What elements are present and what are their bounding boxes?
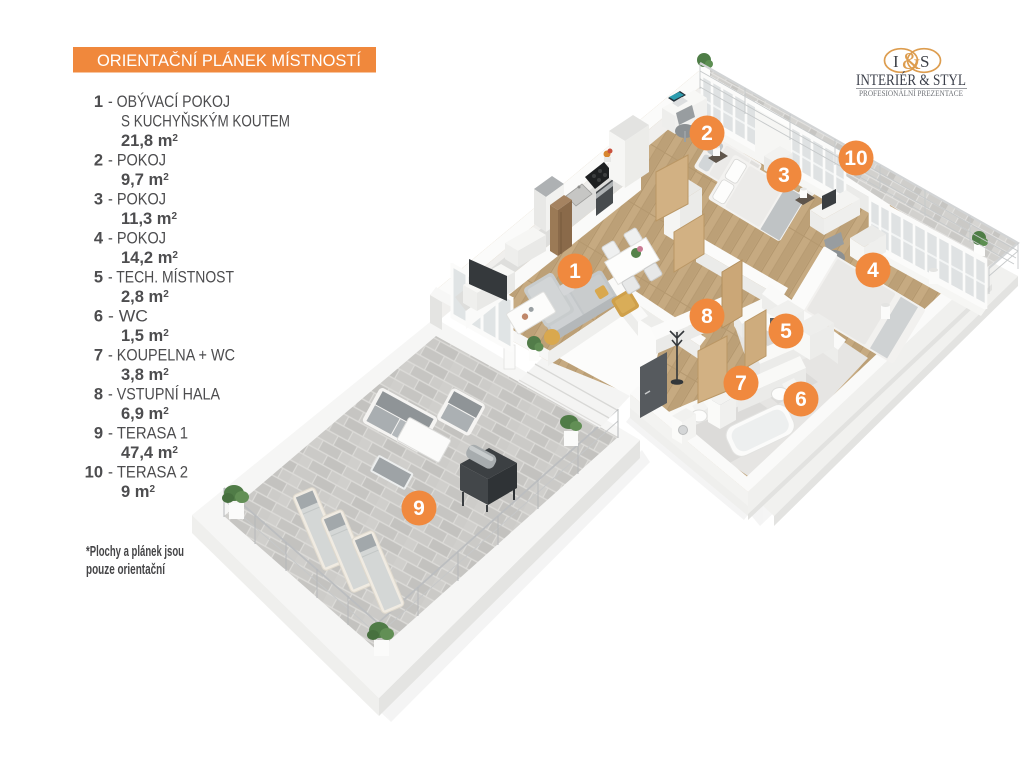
svg-text:9: 9 [94,425,103,443]
svg-text:7: 7 [735,372,747,395]
svg-text:2: 2 [94,152,103,170]
svg-text:- POKOJ: - POKOJ [108,230,166,248]
svg-text:6,9 m2: 6,9 m2 [121,405,169,423]
svg-text:PROFESIONÁLNÍ PREZENTACE: PROFESIONÁLNÍ PREZENTACE [859,88,963,98]
svg-text:8: 8 [701,305,713,328]
svg-text:pouze orientační: pouze orientační [86,562,166,578]
svg-text:9,7 m2: 9,7 m2 [121,171,169,189]
svg-text:2,8 m2: 2,8 m2 [121,288,169,306]
svg-text:INTERIÉR & STYL: INTERIÉR & STYL [856,70,966,89]
svg-text:3: 3 [94,191,103,209]
svg-text:1: 1 [94,93,103,111]
svg-text:4: 4 [867,259,879,282]
svg-text:- POKOJ: - POKOJ [108,191,166,209]
svg-text:4: 4 [94,230,104,248]
svg-text:6: 6 [795,388,807,411]
svg-text:9: 9 [413,497,425,520]
svg-text:- WC: - WC [108,308,148,326]
svg-text:6: 6 [94,308,103,326]
svg-text:5: 5 [94,269,103,287]
svg-text:*Plochy a plánek jsou: *Plochy a plánek jsou [86,544,184,560]
svg-text:- KOUPELNA + WC: - KOUPELNA + WC [108,347,235,365]
svg-text:- OBÝVACÍ POKOJ: - OBÝVACÍ POKOJ [108,92,230,111]
svg-text:I: I [893,52,899,71]
svg-text:- TERASA 1: - TERASA 1 [108,425,188,443]
svg-text:21,8 m2: 21,8 m2 [121,132,178,150]
svg-text:14,2 m2: 14,2 m2 [121,249,178,267]
svg-text:3,8 m2: 3,8 m2 [121,366,169,384]
svg-text:8: 8 [94,386,103,404]
svg-text:S: S [920,52,929,71]
svg-text:S KUCHYŇSKÝM KOUTEM: S KUCHYŇSKÝM KOUTEM [121,112,290,131]
svg-text:- POKOJ: - POKOJ [108,152,166,170]
svg-text:3: 3 [778,164,790,187]
svg-text:- TECH. MÍSTNOST: - TECH. MÍSTNOST [108,268,234,287]
svg-text:5: 5 [780,320,792,343]
svg-text:- TERASA 2: - TERASA 2 [108,464,188,482]
svg-text:10: 10 [85,464,103,482]
svg-text:- VSTUPNÍ HALA: - VSTUPNÍ HALA [108,385,220,404]
svg-text:7: 7 [94,347,103,365]
svg-text:ORIENTAČNÍ PLÁNEK MÍSTNOSTÍ: ORIENTAČNÍ PLÁNEK MÍSTNOSTÍ [97,51,361,70]
svg-text:1,5 m2: 1,5 m2 [121,327,169,345]
svg-text:2: 2 [701,122,713,145]
svg-text:1: 1 [569,260,581,283]
svg-text:47,4 m2: 47,4 m2 [121,444,178,462]
svg-text:11,3 m2: 11,3 m2 [121,210,177,228]
svg-text:10: 10 [844,147,867,170]
